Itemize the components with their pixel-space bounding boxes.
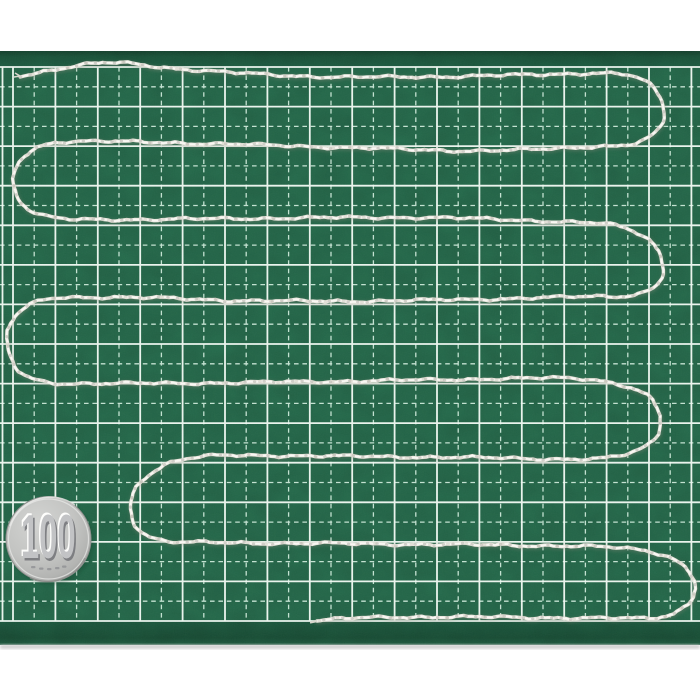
svg-text:100: 100 — [21, 502, 76, 572]
